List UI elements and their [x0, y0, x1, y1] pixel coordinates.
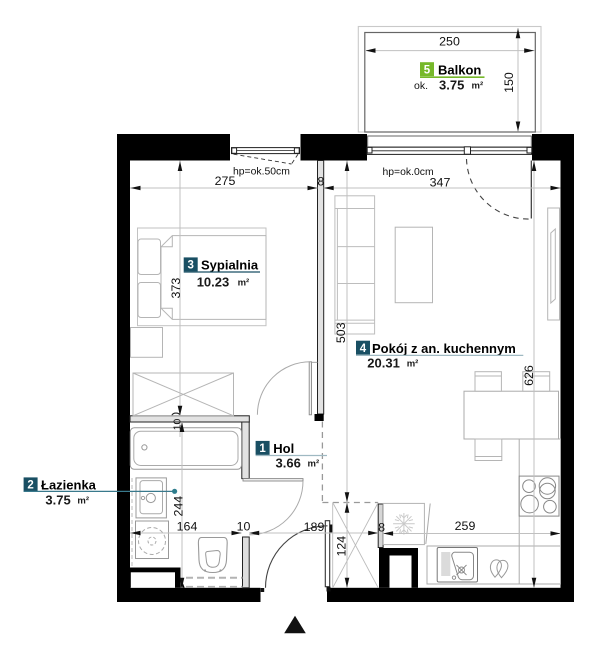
svg-text:Hol: Hol [273, 441, 294, 456]
svg-text:150: 150 [502, 72, 516, 93]
svg-text:124: 124 [334, 536, 348, 557]
svg-text:3.66: 3.66 [276, 456, 301, 471]
svg-text:Sypialnia: Sypialnia [201, 258, 259, 273]
svg-text:m²: m² [77, 495, 89, 506]
svg-text:hp=ok.50cm: hp=ok.50cm [233, 167, 290, 178]
svg-text:4: 4 [360, 343, 367, 355]
svg-text:Pokój z an. kuchennym: Pokój z an. kuchennym [372, 341, 516, 356]
svg-text:10: 10 [237, 520, 251, 534]
svg-text:3: 3 [187, 260, 193, 272]
svg-text:m²: m² [308, 459, 320, 470]
svg-text:10: 10 [172, 419, 183, 431]
svg-text:5: 5 [424, 65, 431, 77]
svg-text:hp=ok.0cm: hp=ok.0cm [383, 167, 434, 178]
svg-text:Balkon: Balkon [438, 63, 481, 78]
svg-text:m²: m² [407, 358, 419, 369]
svg-text:m²: m² [238, 277, 250, 288]
svg-text:ok.: ok. [414, 80, 428, 92]
svg-text:1: 1 [259, 443, 266, 455]
svg-text:250: 250 [439, 35, 460, 49]
svg-text:2: 2 [27, 480, 33, 492]
svg-text:3.75: 3.75 [45, 492, 70, 507]
svg-text:164: 164 [177, 520, 198, 534]
svg-text:8: 8 [317, 175, 324, 189]
svg-text:626: 626 [522, 365, 536, 386]
svg-text:20.31: 20.31 [367, 355, 400, 370]
svg-text:3.75: 3.75 [439, 78, 464, 93]
svg-text:189: 189 [304, 520, 325, 534]
svg-text:m²: m² [472, 81, 484, 92]
svg-text:Łazienka: Łazienka [41, 478, 97, 493]
svg-text:259: 259 [455, 519, 476, 533]
svg-text:8: 8 [378, 521, 385, 535]
svg-text:244: 244 [171, 496, 185, 517]
svg-text:10.23: 10.23 [197, 274, 230, 289]
svg-text:373: 373 [169, 278, 183, 299]
svg-text:503: 503 [334, 322, 348, 343]
